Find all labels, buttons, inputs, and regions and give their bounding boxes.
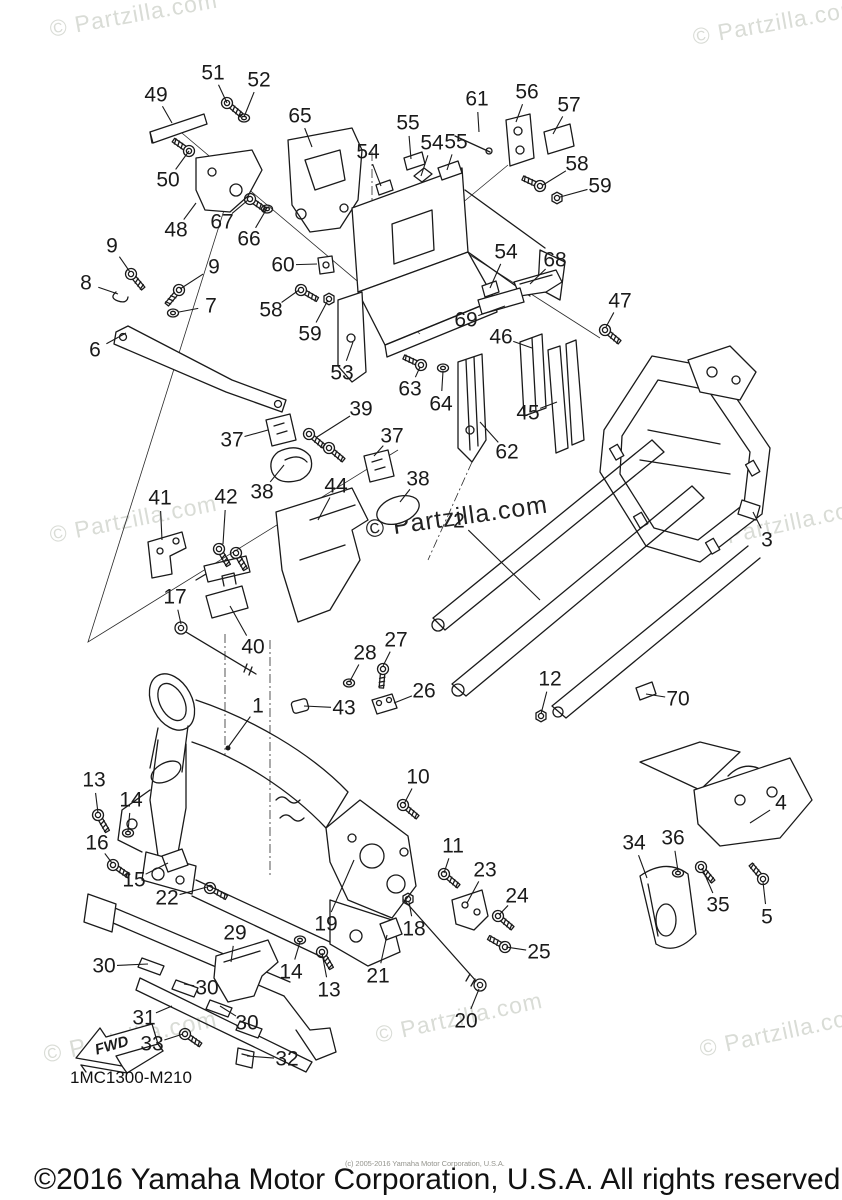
part-number-label: 31 — [132, 1008, 155, 1029]
part-number-label: 67 — [210, 212, 233, 233]
part-number-label: 30 — [195, 978, 218, 999]
part-number-label: 56 — [515, 82, 538, 103]
part-number-label: 8 — [80, 273, 92, 294]
part-number-label: 34 — [622, 833, 645, 854]
part-number-label: 55 — [444, 132, 467, 153]
part-number-label: 14 — [279, 962, 302, 983]
part-number-label: 43 — [332, 698, 355, 719]
part-number-label: 52 — [247, 70, 270, 91]
diagram-code: 1MC1300-M210 — [70, 1068, 192, 1088]
part-number-label: 7 — [205, 296, 217, 317]
part-number-label: 55 — [396, 113, 419, 134]
part-number-label: 38 — [406, 469, 429, 490]
part-number-label: 45 — [516, 403, 539, 424]
part-number-label: 4 — [775, 793, 787, 814]
part-number-label: 54 — [420, 133, 443, 154]
part-number-label: 15 — [122, 870, 145, 891]
part-number-label: 64 — [429, 394, 452, 415]
part-number-label: 62 — [495, 442, 518, 463]
part-number-label: 46 — [489, 327, 512, 348]
part-number-label: 1 — [252, 696, 264, 717]
part-number-label: 40 — [241, 637, 264, 658]
part-number-label: 69 — [454, 310, 477, 331]
part-number-label: 30 — [92, 956, 115, 977]
part-number-label: 26 — [412, 681, 435, 702]
part-number-label: 30 — [235, 1013, 258, 1034]
part-number-label: 2 — [453, 511, 465, 532]
part-number-label: 37 — [220, 430, 243, 451]
part-number-label: 54 — [356, 142, 379, 163]
part-number-label: 60 — [271, 255, 294, 276]
part-number-label: 12 — [538, 669, 561, 690]
part-number-label: 25 — [527, 942, 550, 963]
part-number-label: 61 — [465, 89, 488, 110]
part-number-label: 6 — [89, 340, 101, 361]
part-number-label: 16 — [85, 833, 108, 854]
part-number-label: 47 — [608, 291, 631, 312]
part-number-label: 39 — [349, 399, 372, 420]
part-number-label: 18 — [402, 919, 425, 940]
part-number-label: 59 — [298, 324, 321, 345]
part-number-label: 32 — [275, 1049, 298, 1070]
part-number-label: 22 — [155, 888, 178, 909]
part-number-label: 36 — [661, 828, 684, 849]
part-number-label: 13 — [317, 980, 340, 1001]
part-number-label: 17 — [163, 587, 186, 608]
part-number-label: 63 — [398, 379, 421, 400]
part-number-label: 38 — [250, 482, 273, 503]
part-number-label: 21 — [366, 966, 389, 987]
part-number-label: 19 — [314, 914, 337, 935]
parts-diagram-canvas: © Partzilla.com© Partzilla.com© Partzill… — [0, 0, 842, 1200]
part-number-label: 53 — [330, 363, 353, 384]
part-number-label: 42 — [214, 487, 237, 508]
part-number-label: 70 — [666, 689, 689, 710]
part-number-label: 20 — [454, 1011, 477, 1032]
part-number-label: 50 — [156, 170, 179, 191]
part-number-label: 41 — [148, 488, 171, 509]
callout-layer: 5152496550486766609987658595363643937373… — [0, 0, 842, 1200]
part-number-label: 48 — [164, 220, 187, 241]
part-number-label: 10 — [406, 767, 429, 788]
part-number-label: 59 — [588, 176, 611, 197]
part-number-label: 13 — [82, 770, 105, 791]
part-number-label: 9 — [106, 236, 118, 257]
copyright-text: ©2016 Yamaha Motor Corporation, U.S.A. A… — [34, 1163, 842, 1197]
part-number-label: 23 — [473, 860, 496, 881]
part-number-label: 65 — [288, 106, 311, 127]
part-number-label: 9 — [208, 257, 220, 278]
part-number-label: 51 — [201, 63, 224, 84]
part-number-label: 3 — [761, 530, 773, 551]
part-number-label: 14 — [119, 790, 142, 811]
part-number-label: 44 — [324, 476, 347, 497]
part-number-label: 68 — [543, 250, 566, 271]
part-number-label: 11 — [442, 836, 464, 857]
part-number-label: 33 — [140, 1034, 163, 1055]
part-number-label: 29 — [223, 923, 246, 944]
part-number-label: 27 — [384, 630, 407, 651]
part-number-label: 28 — [353, 643, 376, 664]
part-number-label: 24 — [505, 886, 528, 907]
part-number-label: 5 — [761, 907, 773, 928]
part-number-label: 58 — [259, 300, 282, 321]
part-number-label: 49 — [144, 85, 167, 106]
part-number-label: 58 — [565, 154, 588, 175]
part-number-label: 57 — [557, 95, 580, 116]
part-number-label: 54 — [494, 242, 517, 263]
part-number-label: 66 — [237, 229, 260, 250]
part-number-label: 35 — [706, 895, 729, 916]
part-number-label: 37 — [380, 426, 403, 447]
